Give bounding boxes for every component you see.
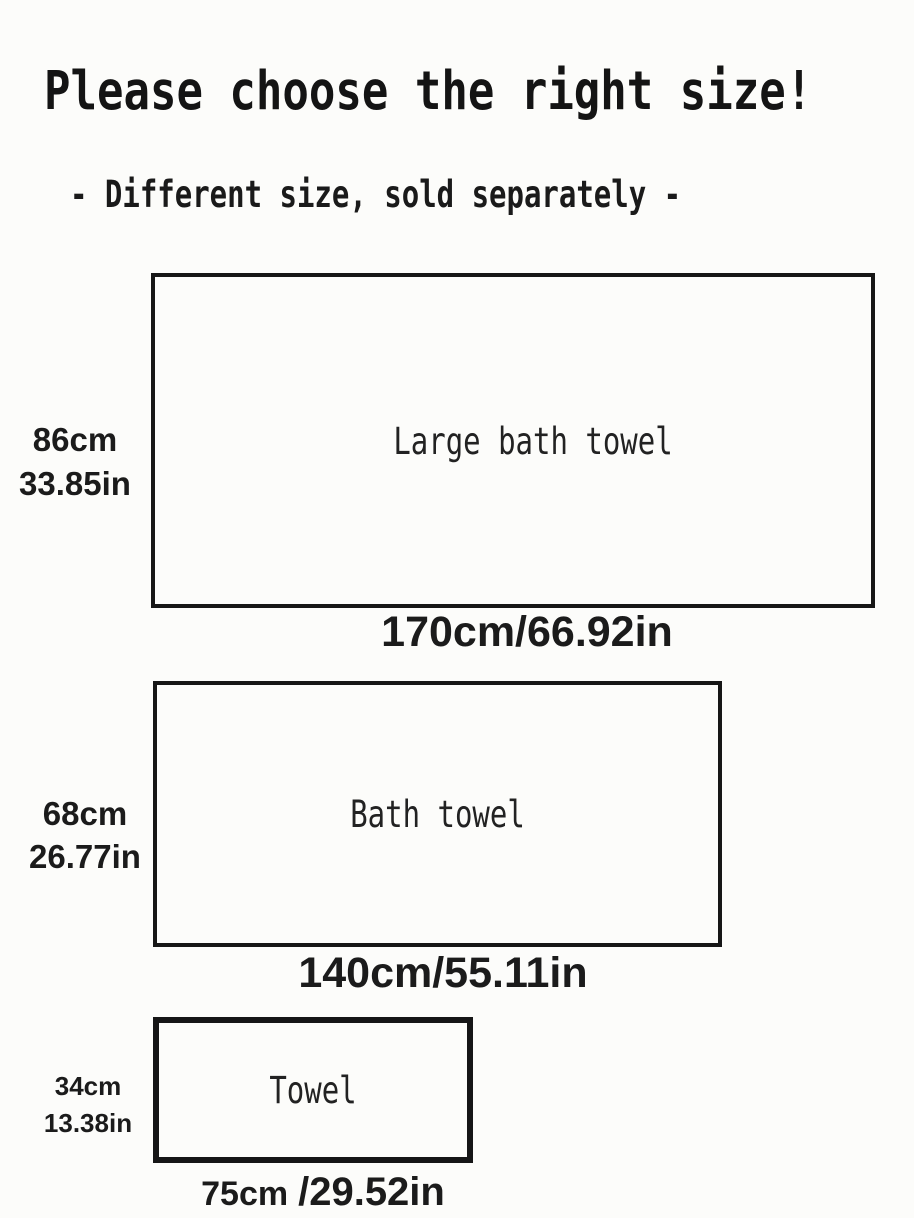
large-bath-towel-rectangle: Large bath towel bbox=[151, 273, 875, 608]
large-bath-towel-height-in: 33.85in bbox=[0, 462, 150, 506]
page-subtitle: - Different size, sold separately - bbox=[70, 171, 681, 217]
towel-height-in: 13.38in bbox=[8, 1105, 168, 1142]
towel-rectangle: Towel bbox=[153, 1017, 473, 1163]
towel-height-cm: 34cm bbox=[8, 1068, 168, 1105]
page-title: Please choose the right size! bbox=[44, 60, 812, 123]
towel-width-label: 75cm/29.52in bbox=[163, 1172, 483, 1214]
bath-towel-height-in: 26.77in bbox=[5, 835, 165, 878]
bath-towel-name: Bath towel bbox=[350, 792, 525, 836]
large-bath-towel-height-cm: 86cm bbox=[0, 418, 150, 462]
bath-towel-height-cm: 68cm bbox=[5, 792, 165, 835]
bath-towel-width-label: 140cm/55.11in bbox=[143, 952, 743, 994]
large-bath-towel-name: Large bath towel bbox=[393, 418, 672, 462]
size-chart-page: Please choose the right size! - Differen… bbox=[0, 0, 914, 1218]
large-bath-towel-width-label: 170cm/66.92in bbox=[165, 611, 889, 653]
large-bath-towel-height-label: 86cm 33.85in bbox=[0, 418, 150, 506]
towel-height-label: 34cm 13.38in bbox=[8, 1068, 168, 1142]
towel-name: Towel bbox=[269, 1068, 356, 1112]
towel-width-in: /29.52in bbox=[298, 1170, 445, 1214]
towel-width-cm: 75cm bbox=[201, 1175, 288, 1213]
bath-towel-height-label: 68cm 26.77in bbox=[5, 792, 165, 878]
bath-towel-rectangle: Bath towel bbox=[153, 681, 722, 947]
